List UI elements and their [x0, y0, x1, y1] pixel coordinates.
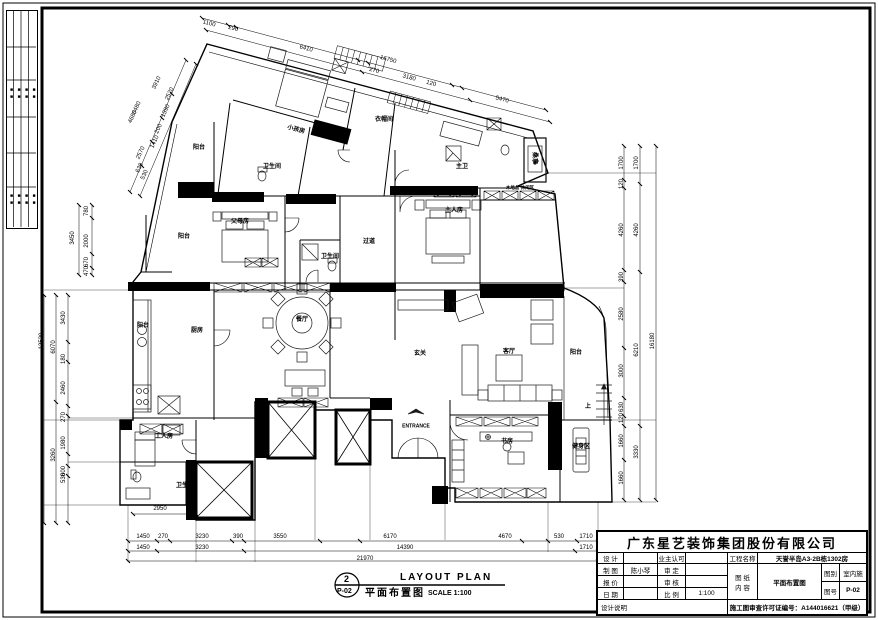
dimension-label: 3430 [61, 311, 67, 324]
quote-label: 报 价 [598, 576, 624, 588]
dimension-label: 16180 [650, 333, 656, 350]
room-label: 小孩房 [287, 125, 306, 135]
room-label: 卫生间 [321, 254, 339, 260]
dimension-label: 120 [619, 413, 625, 423]
scale-value: 1:100 [686, 588, 728, 600]
category-value: 室内施 [840, 564, 866, 582]
room-label: 木地台 休闲区 [506, 186, 534, 191]
dimension-label: 3230 [195, 534, 208, 540]
callout-sheet-ref: P-02 [337, 588, 352, 595]
dimension-label: 120 [619, 179, 625, 189]
dimension-label: 6170 [383, 534, 396, 540]
room-label: 厨房 [191, 328, 203, 334]
dimension-label: 16750 [379, 55, 397, 65]
dimension-label: 1980 [61, 436, 67, 449]
dimension-label: 120 [425, 80, 436, 88]
dimension-label: 1390 [160, 104, 171, 119]
dimension-label: 14390 [397, 545, 414, 551]
room-label: 上 [585, 404, 591, 410]
sheet-content-label: 图 纸 内 容 [728, 564, 758, 600]
check-value [686, 576, 728, 588]
approve-label: 审 定 [658, 564, 686, 576]
dimension-label: 1700 [619, 156, 625, 169]
room-label: 卫生间 [263, 164, 281, 170]
dimension-label: 1450 [136, 534, 149, 540]
dimension-label: 1710 [579, 545, 592, 551]
stamp-cell: ■■ [9, 193, 15, 207]
dimension-label: 3450 [70, 231, 76, 244]
dimension-label: 5470 [495, 95, 509, 104]
callout-title-cn: 平面布置图 [365, 589, 425, 599]
room-label: 玄关 [414, 351, 426, 357]
dimension-label: 3550 [273, 534, 286, 540]
dimension-label: 390 [233, 534, 243, 540]
stamp-cell: ■■ [24, 87, 30, 101]
drawing-sheet: 小孩房阳台卫生间衣帽间主卫桑拿主人房木地台 休闲区父母房阳台过道卫生间厨房阳台餐… [0, 0, 878, 620]
dimension-label: 1100 [202, 19, 216, 28]
room-label: 阳台 [137, 323, 149, 329]
room-label: 父母房 [231, 219, 249, 225]
room-label: 书房 [501, 439, 513, 445]
owner-label: 业主认可 [658, 552, 686, 564]
room-label: 阳台 [193, 145, 205, 151]
dimension-label: 3260 [51, 448, 57, 461]
room-label: 客厅 [503, 349, 515, 355]
dimension-label: 6070 [51, 340, 57, 353]
dimension-label: 3230 [195, 545, 208, 551]
dimension-label: 1450 [136, 545, 149, 551]
draft-label: 制 图 [598, 564, 624, 576]
dimension-label: 270 [158, 534, 168, 540]
dimension-label: 2520 [164, 87, 175, 102]
room-label: 桑拿 [531, 152, 537, 164]
dimension-label: 3000 [619, 364, 625, 377]
owner-value [686, 552, 728, 564]
room-label: 阳台 [570, 350, 582, 356]
design-value [624, 552, 658, 564]
room-label: 阳台 [178, 234, 190, 240]
company-name: 广东星艺装饰集团股份有限公司 [598, 532, 866, 553]
dimension-label: 200 [154, 123, 164, 135]
dimension-label: 470 [84, 266, 90, 276]
dimension-label: 290 [227, 25, 238, 33]
callout-scale: SCALE 1:100 [428, 590, 472, 597]
dimension-label: 780 [84, 206, 90, 216]
dimension-label: 2000 [84, 234, 90, 247]
dimension-label: 3330 [634, 445, 640, 458]
room-label: 衣帽间 [375, 117, 393, 123]
sheet-label: 图 纸 [735, 572, 750, 582]
dimension-label: 6410 [299, 44, 313, 53]
dimension-label: 2460 [61, 381, 67, 394]
category-label: 图别 [822, 564, 840, 582]
dimension-label: 4670 [498, 534, 511, 540]
date-value [624, 588, 658, 600]
dimension-label: 13520 [39, 333, 45, 350]
dimension-label: 1710 [579, 534, 592, 540]
dimension-label: 21970 [357, 556, 374, 562]
approve-value [686, 564, 728, 576]
dimension-label: 390 [619, 272, 625, 282]
stamp-cell: ■■ [31, 87, 37, 101]
permit-number: 施工图审查许可证编号：A144016621（甲级） [728, 600, 866, 614]
room-label: 主人房 [445, 208, 463, 214]
dimension-label: 530 [554, 534, 564, 540]
dimension-label: 1410 [149, 135, 160, 150]
dimension-label: 1660 [619, 471, 625, 484]
stamp-cell: ■■ [16, 87, 22, 101]
title-block: 广东星艺装饰集团股份有限公司 设 计 业主认可 工程名称 天誉半岛A3-2B栋1… [596, 530, 868, 616]
dimension-label: 270 [368, 67, 379, 75]
stamp-cell: ■■ [24, 193, 30, 207]
date-label: 日 期 [598, 588, 624, 600]
project-label: 工程名称 [728, 552, 758, 564]
room-label: 卫生间 [176, 483, 194, 489]
callout-number: 2 [344, 575, 349, 584]
room-label: 餐厅 [296, 317, 308, 323]
dimension-label: 180 [61, 354, 67, 364]
scale-label: 比 例 [658, 588, 686, 600]
room-label: 工人房 [155, 434, 173, 440]
plan-label-layer: 小孩房阳台卫生间衣帽间主卫桑拿主人房木地台 休闲区父母房阳台过道卫生间厨房阳台餐… [0, 0, 878, 620]
dimension-label: 2580 [619, 307, 625, 320]
dimension-label: 630 [619, 402, 625, 412]
dimension-label: 1660 [619, 434, 625, 447]
dimension-label: 3910 [151, 76, 162, 91]
design-label: 设 计 [598, 552, 624, 564]
stamp-cell: ■■ [31, 193, 37, 207]
content-label: 内 容 [735, 582, 750, 592]
room-label: 主卫 [456, 164, 468, 170]
dimension-label: 4260 [619, 223, 625, 236]
dimension-label: 6480 [131, 101, 142, 116]
dimension-label: 1700 [634, 156, 640, 169]
note-label: 设计说明 [598, 600, 728, 614]
dimension-label: 270 [61, 412, 67, 422]
callout-title-en: LAYOUT PLAN [400, 573, 492, 583]
dimension-label: 2950 [153, 506, 166, 512]
stamp-cell: ■■ [16, 193, 22, 207]
room-label: ENTRANCE [402, 425, 430, 430]
project-value: 天誉半岛A3-2B栋1302房 [758, 552, 866, 564]
content-value: 平面布置图 [758, 564, 822, 600]
dimension-label: 4260 [634, 223, 640, 236]
dimension-label: 3180 [402, 73, 416, 82]
dimension-label: 6210 [634, 343, 640, 356]
binding-strip: ■■■■■■■■■■■■■■■■ [6, 10, 38, 229]
quote-value [624, 576, 658, 588]
check-label: 审 核 [658, 576, 686, 588]
draft-value: 陈小琴 [624, 564, 658, 576]
number-label: 图号 [822, 582, 840, 600]
dimension-label: 530 [61, 473, 67, 483]
room-label: 过道 [363, 239, 375, 245]
number-value: P-02 [840, 582, 866, 600]
stamp-cell: ■■ [9, 87, 15, 101]
dimension-label: 2570 [135, 146, 146, 161]
room-label: 健身区 [572, 444, 590, 450]
